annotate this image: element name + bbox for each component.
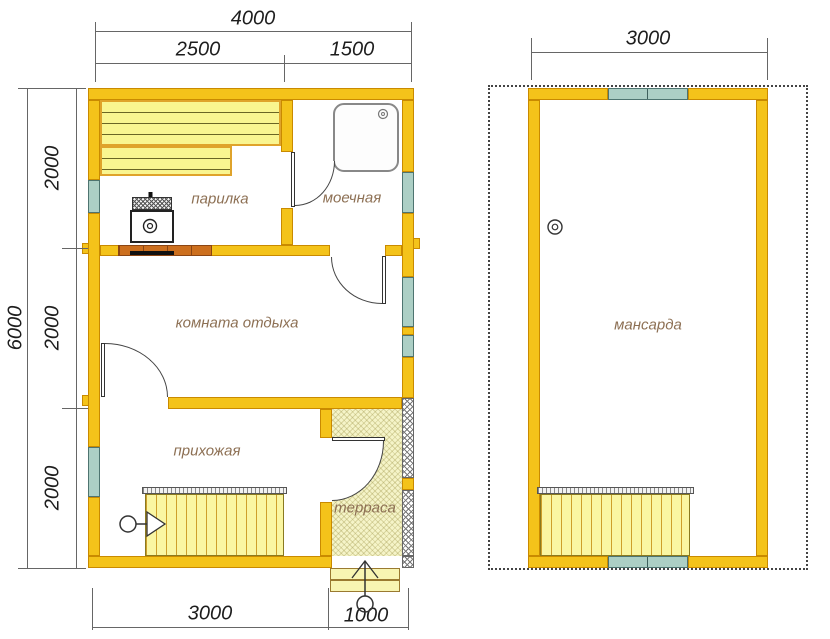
entrance-arrow [352, 561, 378, 612]
symbols-overlay [0, 0, 830, 639]
chimney-icon [548, 220, 562, 234]
shower-drain-icon [379, 110, 388, 119]
stair-direction-arrow [120, 512, 165, 536]
stove-heater-icon [144, 192, 157, 233]
floor-plan-drawing: парилка моечная комната отдыха прихожая … [0, 0, 830, 639]
